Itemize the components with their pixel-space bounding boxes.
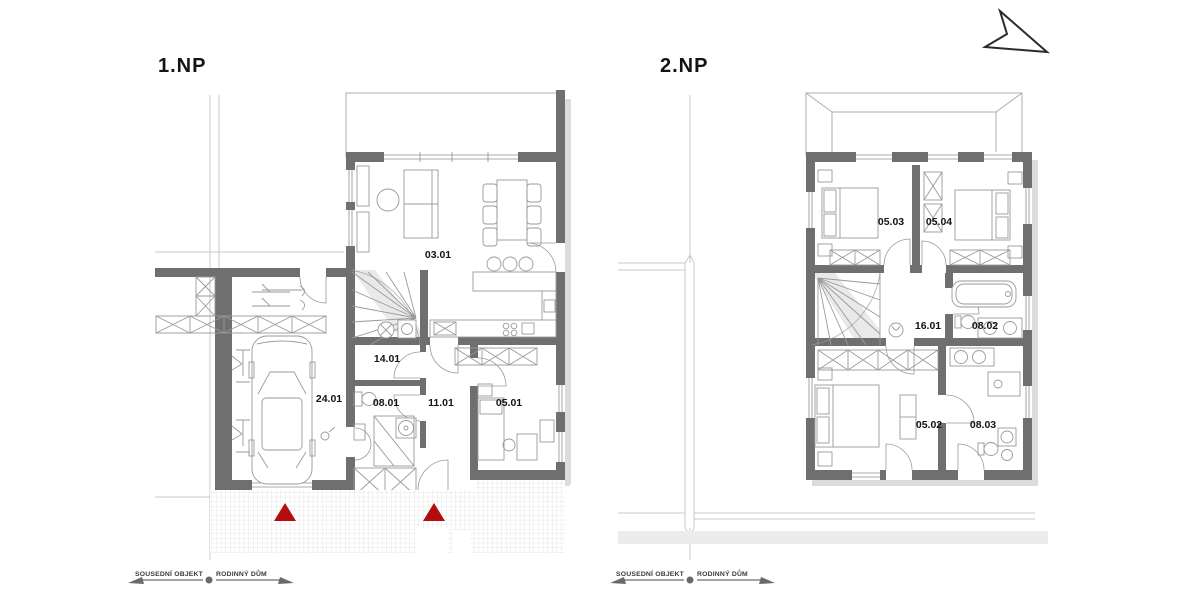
plan-2np: 2.NP — [610, 55, 1048, 584]
bathroom-0803 — [950, 348, 1020, 461]
floor-plan-sheet: 1.NP — [0, 0, 1200, 600]
room-label: 08.01 — [373, 397, 399, 409]
room-label: 03.01 — [425, 249, 451, 261]
room-label: 24.01 — [316, 393, 342, 405]
room-label: 14.01 — [374, 353, 400, 365]
boundary-marker-1np: SOUSEDNÍ OBJEKT RODINNÝ DŮM — [128, 568, 294, 584]
paving-1np — [210, 480, 565, 553]
room-label: 08.02 — [972, 320, 998, 332]
kitchen-1np — [430, 272, 556, 337]
pergola-truss — [156, 277, 326, 333]
plan-1np: 1.NP — [128, 55, 571, 584]
room-label: 05.02 — [916, 419, 942, 431]
room-label: 08.03 — [970, 419, 996, 431]
boundary-right-label: RODINNÝ DŮM — [216, 568, 267, 578]
room-label: 05.01 — [496, 397, 522, 409]
room-label: 05.04 — [926, 216, 952, 228]
bedroom-0502 — [815, 350, 938, 466]
plan-title-2np: 2.NP — [660, 55, 708, 77]
bedroom-0503 — [818, 170, 880, 265]
floor-plans-canvas: 1.NP — [0, 0, 1200, 600]
boundary-right-label: RODINNÝ DŮM — [697, 568, 748, 578]
boundary-left-label: SOUSEDNÍ OBJEKT — [616, 569, 685, 578]
hall-1601 — [889, 323, 903, 337]
room-label: 11.01 — [428, 397, 454, 409]
garage-1np — [156, 277, 335, 484]
boundary-marker-2np: SOUSEDNÍ OBJEKT RODINNÝ DŮM — [610, 568, 775, 584]
boundary-left-label: SOUSEDNÍ OBJEKT — [135, 569, 204, 578]
terrace-outline-1np — [346, 93, 558, 157]
north-arrow-icon — [985, 11, 1047, 52]
plan-title-1np: 1.NP — [158, 55, 206, 77]
car-icon — [249, 290, 315, 484]
room-label: 16.01 — [915, 320, 941, 332]
room-label: 05.03 — [878, 216, 904, 228]
terrace-outline-2np — [806, 93, 1022, 155]
